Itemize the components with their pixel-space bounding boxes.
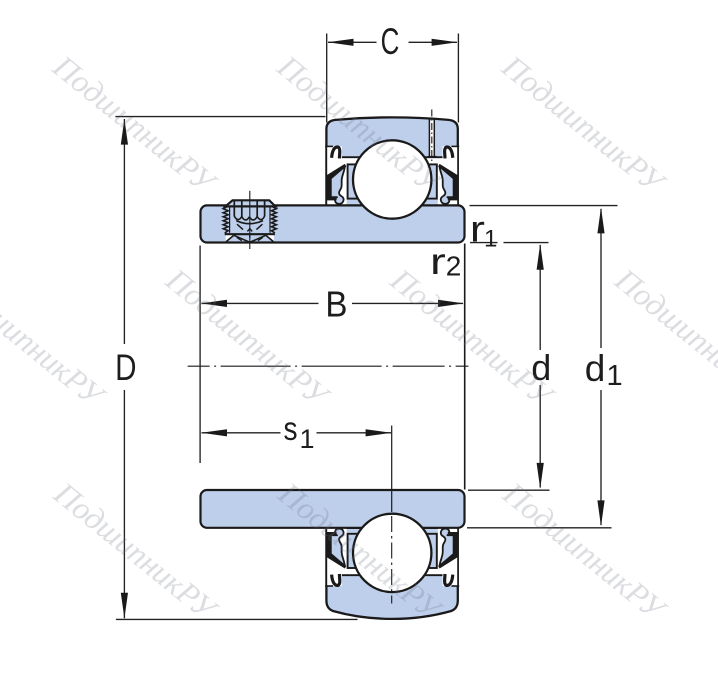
svg-text:1: 1 — [607, 360, 623, 392]
svg-text:r: r — [470, 208, 485, 249]
svg-text:r: r — [430, 242, 446, 283]
svg-text:s: s — [284, 411, 298, 448]
svg-text:D: D — [115, 348, 136, 389]
svg-text:1: 1 — [484, 226, 497, 253]
svg-text:d: d — [585, 348, 606, 389]
svg-text:B: B — [325, 285, 347, 325]
svg-text:1: 1 — [300, 424, 315, 454]
svg-text:C: C — [381, 21, 400, 63]
svg-text:2: 2 — [446, 251, 462, 282]
